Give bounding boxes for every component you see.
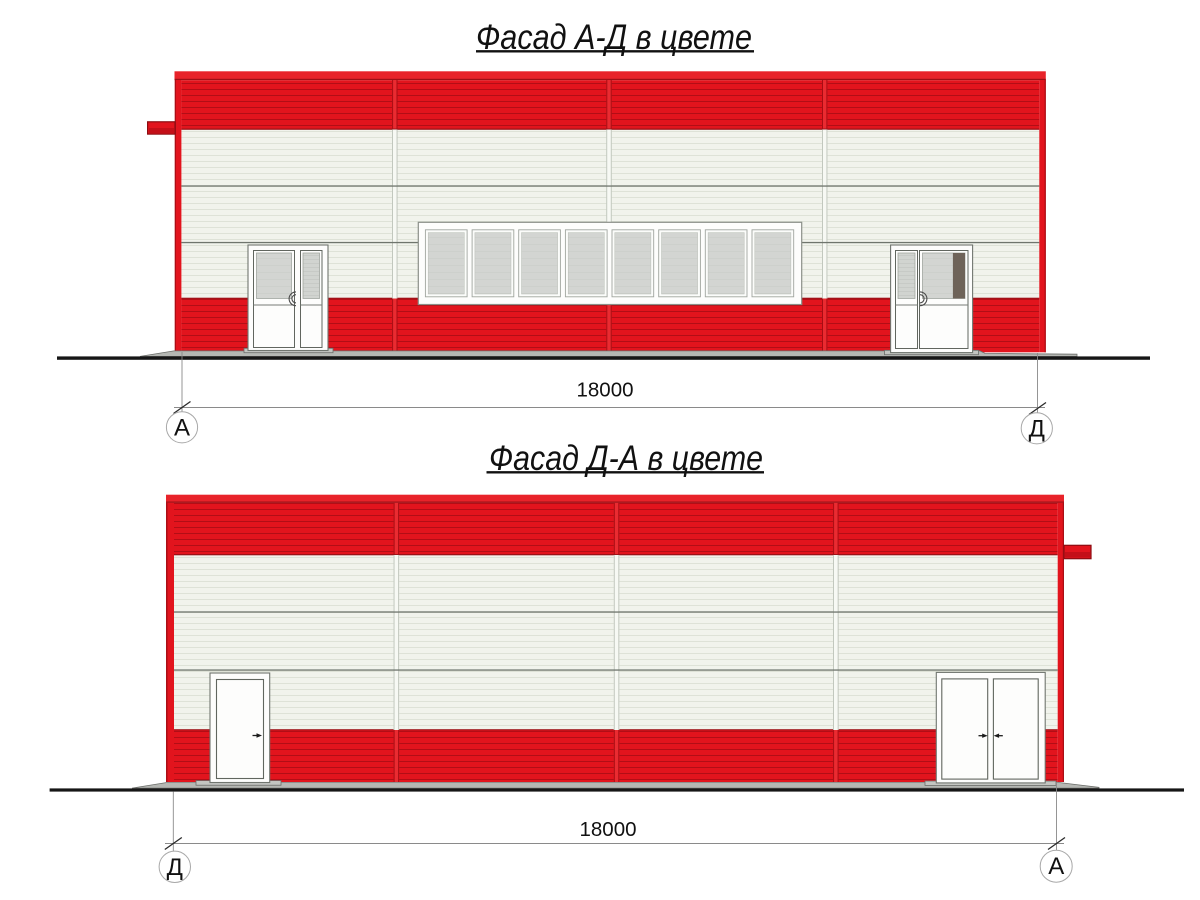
svg-text:А: А [174,414,190,441]
svg-text:А: А [1048,853,1064,880]
svg-text:Д: Д [1029,415,1045,442]
svg-text:18000: 18000 [579,818,636,841]
svg-text:18000: 18000 [576,379,633,402]
svg-text:Д: Д [167,854,183,881]
